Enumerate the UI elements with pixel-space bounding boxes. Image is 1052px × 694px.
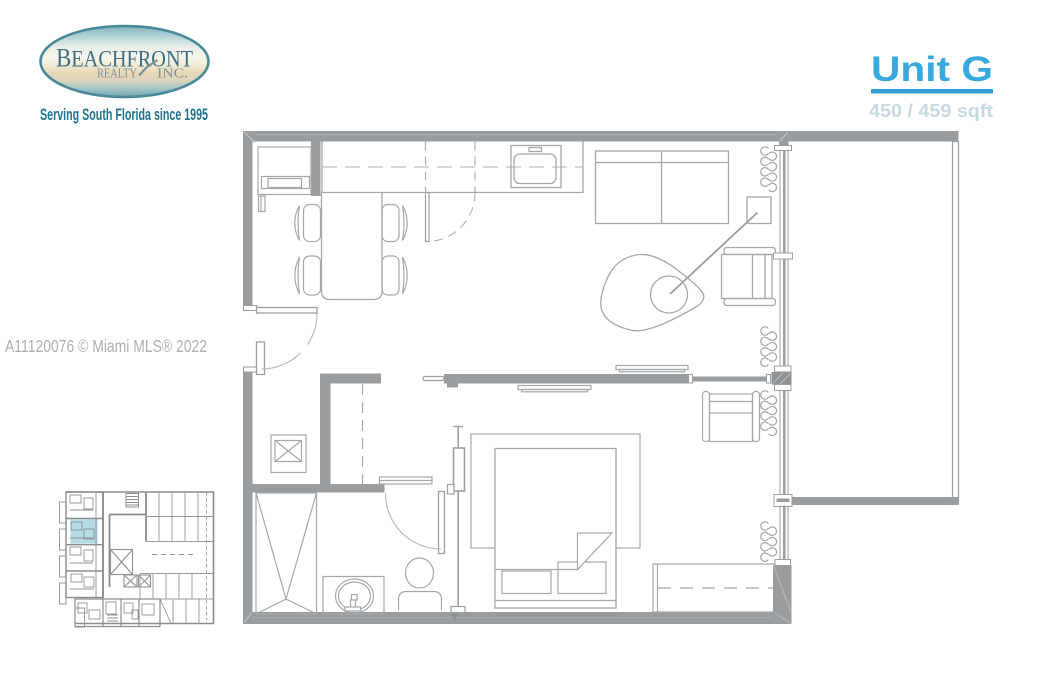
svg-text:REALTY: REALTY [97, 66, 137, 81]
svg-text:450 / 459 sqft: 450 / 459 sqft [869, 101, 993, 121]
svg-text:INC.: INC. [157, 66, 188, 81]
svg-text:Unit G: Unit G [871, 50, 993, 89]
svg-text:A11120076 © Miami MLS® 2022: A11120076 © Miami MLS® 2022 [5, 336, 207, 356]
svg-text:Serving South Florida since 19: Serving South Florida since 1995 [40, 106, 208, 124]
